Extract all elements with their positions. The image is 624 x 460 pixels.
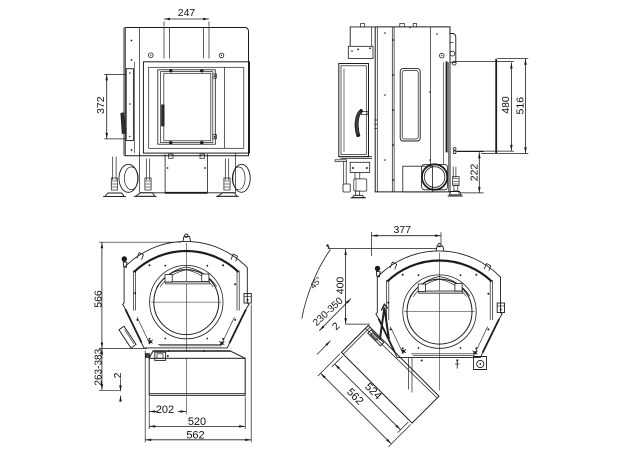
svg-text:377: 377 <box>394 224 412 236</box>
svg-text:562: 562 <box>186 429 204 441</box>
svg-text:263-383: 263-383 <box>93 348 104 385</box>
svg-text:520: 520 <box>188 416 206 428</box>
svg-text:516: 516 <box>515 97 527 115</box>
svg-text:372: 372 <box>95 96 107 114</box>
svg-text:247: 247 <box>178 7 196 19</box>
svg-text:222: 222 <box>469 164 481 182</box>
svg-text:202: 202 <box>156 404 174 416</box>
svg-text:2: 2 <box>112 372 124 378</box>
svg-text:480: 480 <box>500 96 512 114</box>
svg-text:566: 566 <box>92 290 104 308</box>
svg-text:400: 400 <box>335 277 347 295</box>
